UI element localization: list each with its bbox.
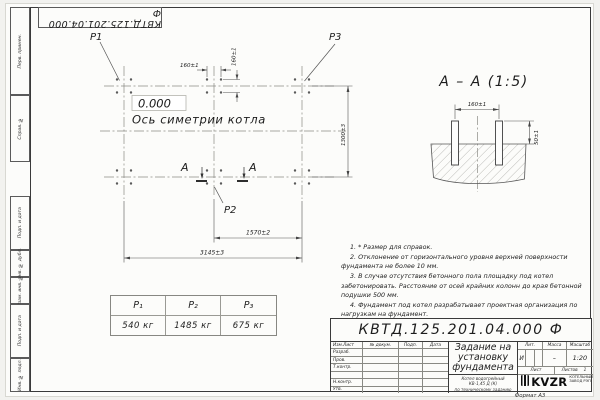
empty-cell bbox=[363, 387, 399, 393]
scale-value: 1:20 bbox=[567, 350, 593, 366]
drawing-title-cell: Задание на установку фундамента Котел во… bbox=[448, 342, 518, 393]
drawing-sheet: Перв. примен. Справ. № Подп. и дата Инв.… bbox=[0, 0, 600, 400]
grid-row-razrab: Разраб. bbox=[331, 349, 448, 356]
technical-notes: 1. * Размер для справок. 2. Отклонение о… bbox=[341, 243, 592, 320]
dim-arrow bbox=[296, 257, 302, 260]
sheets-cell: Листов 1 bbox=[555, 367, 593, 374]
dim-arrow bbox=[236, 93, 239, 98]
section-title: А – А (1:5) bbox=[438, 74, 528, 90]
loads-value-p1: 540 кг bbox=[111, 316, 166, 335]
dim-1570-text: 1570±2 bbox=[246, 230, 270, 237]
grid-row-prov: Пров. bbox=[331, 357, 448, 364]
row-label: Пров. bbox=[331, 357, 363, 363]
empty-cell bbox=[423, 349, 448, 355]
grid-row-utv: Утв. bbox=[331, 387, 448, 393]
grid-row-tkontr: Т.контр. bbox=[331, 364, 448, 371]
empty-cell bbox=[363, 349, 399, 355]
col-podp: Подп. bbox=[399, 342, 423, 348]
load-point-p3-label: P3 bbox=[329, 32, 341, 43]
dim-3145-text: 3145±3 bbox=[200, 250, 224, 257]
dim-arrow bbox=[455, 108, 461, 111]
sheet-row: Лист Листов 1 bbox=[518, 367, 593, 375]
title-line: фундамента bbox=[452, 363, 514, 373]
format-note: Формат А3 bbox=[455, 393, 600, 399]
subtitle-line: по техническому заданию bbox=[455, 387, 512, 392]
empty-cell bbox=[423, 379, 448, 385]
empty-cell bbox=[423, 364, 448, 370]
dim-arrow bbox=[214, 237, 220, 240]
note-2: 2. Отклонение от горизонтального уровня … bbox=[341, 253, 592, 272]
empty-cell bbox=[363, 372, 399, 378]
dim-arrow bbox=[528, 121, 531, 127]
empty-cell bbox=[399, 387, 423, 393]
loads-header-p3: Р₃ bbox=[221, 296, 276, 316]
empty-cell bbox=[399, 357, 423, 363]
loads-value-p3: 675 кг bbox=[221, 316, 276, 335]
centerlines bbox=[100, 66, 346, 199]
col-dokum: № докум. bbox=[363, 342, 399, 348]
loads-value-p2: 1485 кг bbox=[166, 316, 221, 335]
empty-cell bbox=[423, 372, 448, 378]
dim-1300-text: 1300±3 bbox=[341, 123, 347, 146]
grid-header-row: Изм.Лист № докум. Подп. Дата bbox=[331, 342, 448, 349]
section-view: А – А (1:5) 160±1 50±1 bbox=[431, 74, 540, 192]
company-logo-cell: KVZR КОТЕЛЬНЫЙ ЗАВОД РЭП bbox=[518, 375, 593, 393]
row-label: Разраб. bbox=[331, 349, 363, 355]
kvzr-logo-text: KVZR bbox=[531, 375, 567, 393]
empty-cell bbox=[423, 357, 448, 363]
row-label: Н.контр. bbox=[331, 379, 363, 385]
empty-cell bbox=[363, 357, 399, 363]
sheet-label: Лист bbox=[518, 367, 555, 374]
document-number: КВТД.125.201.04.000 Ф bbox=[331, 319, 591, 342]
empty-cell bbox=[399, 372, 423, 378]
kvzr-caption: КОТЕЛЬНЫЙ ЗАВОД РЭП bbox=[569, 375, 593, 393]
row-label: Т.контр. bbox=[331, 364, 363, 370]
anchor-bolts bbox=[116, 78, 310, 184]
empty-cell bbox=[526, 350, 534, 366]
lms-values-row: И – 1:20 bbox=[518, 350, 593, 367]
sheets-value: 1 bbox=[584, 368, 587, 373]
caption-line: ЗАВОД РЭП bbox=[569, 379, 593, 383]
scale-label: Масштаб bbox=[567, 342, 593, 349]
loads-header-p2: Р₂ bbox=[166, 296, 221, 316]
dim-arrow bbox=[236, 75, 239, 80]
dim-arrow bbox=[124, 257, 130, 260]
loads-table: Р₁ Р₂ Р₃ 540 кг 1485 кг 675 кг bbox=[110, 295, 277, 336]
kvzr-coil-icon bbox=[521, 375, 529, 386]
empty-cell bbox=[423, 387, 448, 393]
boiler-symmetry-axis-label: Ось симетрии котла bbox=[132, 113, 266, 127]
grid-row-nkontr: Н.контр. bbox=[331, 379, 448, 386]
sheets-label: Листов bbox=[562, 368, 578, 373]
section-letter-right: А bbox=[248, 161, 257, 174]
section-letter-left: А bbox=[180, 161, 189, 174]
col-izm-list: Изм.Лист bbox=[331, 342, 363, 348]
dim-160v-text: 160±1 bbox=[232, 47, 238, 66]
empty-cell bbox=[399, 379, 423, 385]
lit-label: Лит. bbox=[518, 342, 543, 349]
loads-header-p1: Р₁ bbox=[111, 296, 166, 316]
dim-arrow bbox=[347, 171, 350, 177]
dim-arrow bbox=[296, 237, 302, 240]
dim-160h-text: 160±1 bbox=[180, 63, 199, 69]
revision-signature-grid: Изм.Лист № докум. Подп. Дата Разраб. Про… bbox=[331, 342, 448, 393]
dim-arrow bbox=[202, 69, 207, 72]
row-label: Утв. bbox=[331, 387, 363, 393]
drawing-title: Задание на установку фундамента bbox=[449, 342, 517, 375]
dim-arrow bbox=[347, 86, 350, 92]
drawing-subtitle: Котел водогрейный КВ-1,45 Д (К) по техни… bbox=[449, 375, 517, 393]
load-point-p2-label: P2 bbox=[224, 205, 236, 216]
lit-mass-scale-block: Лит. Масса Масштаб И – 1:20 Лист Листов … bbox=[518, 342, 593, 393]
mass-value: – bbox=[543, 350, 567, 366]
concrete-foundation bbox=[431, 144, 526, 184]
lms-header-row: Лит. Масса Масштаб bbox=[518, 342, 593, 350]
grid-row-blank bbox=[331, 372, 448, 379]
title-block: КВТД.125.201.04.000 Ф Изм.Лист № докум. … bbox=[330, 318, 592, 392]
empty-cell bbox=[363, 364, 399, 370]
empty-cell bbox=[331, 372, 363, 378]
load-point-p1-label: P1 bbox=[90, 32, 102, 43]
note-3: 3. В случае отсутствия бетонного пола пл… bbox=[341, 272, 592, 301]
lit-value: И bbox=[518, 350, 526, 366]
anchor-bolt-right bbox=[496, 121, 503, 165]
mass-label: Масса bbox=[543, 342, 567, 349]
elevation-value: 0.000 bbox=[138, 97, 171, 111]
dim-arrow bbox=[221, 69, 226, 72]
empty-cell bbox=[399, 349, 423, 355]
empty-cell bbox=[363, 379, 399, 385]
plan-view: P1 P3 P2 0.000 Ось симетрии котла 160±1 … bbox=[90, 32, 353, 263]
empty-cell bbox=[535, 350, 543, 366]
empty-cell bbox=[399, 364, 423, 370]
col-data: Дата bbox=[423, 342, 448, 348]
dim-arrow bbox=[528, 139, 531, 145]
dim-arrow bbox=[493, 108, 499, 111]
section-dim-160-text: 160±1 bbox=[468, 102, 487, 108]
note-1: 1. * Размер для справок. bbox=[341, 243, 592, 253]
anchor-bolt-left bbox=[452, 121, 459, 165]
section-dim-50-text: 50±1 bbox=[534, 130, 540, 145]
section-cut-marks bbox=[196, 167, 248, 181]
